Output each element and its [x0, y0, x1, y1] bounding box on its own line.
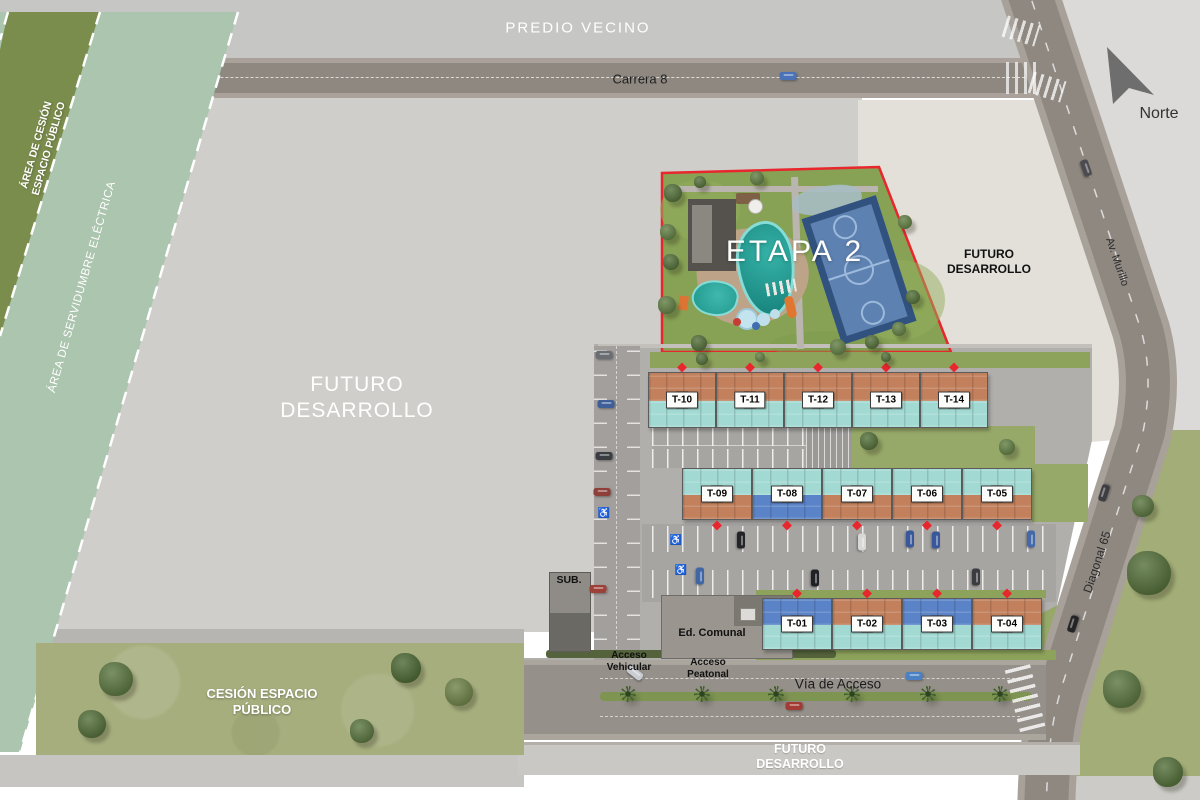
- clubhouse-building: [688, 199, 736, 271]
- tower-label[interactable]: T-06: [911, 486, 943, 503]
- tower[interactable]: T-14: [920, 372, 988, 428]
- tree-icon: [1103, 670, 1141, 708]
- tower-label[interactable]: T-14: [938, 392, 970, 409]
- building-detail: [740, 608, 756, 621]
- sidewalk: [598, 344, 1092, 348]
- court-center-circle: [840, 251, 878, 289]
- building-detail: [692, 205, 712, 263]
- sidewalk-strip: [0, 629, 524, 643]
- lawn: [1032, 464, 1088, 522]
- parking-stalls: [627, 346, 640, 664]
- parking-stalls: [652, 449, 806, 468]
- zone-label-line: DESARROLLO: [947, 262, 1031, 277]
- tree-icon: [1127, 551, 1171, 595]
- tower-roof-upper: [893, 469, 961, 495]
- stairs-detail: [762, 600, 788, 624]
- parking-stalls: [652, 426, 806, 446]
- sidewalk-strip: [0, 755, 524, 787]
- diagonal-65-label: Diagonal 65: [1080, 529, 1113, 594]
- tower-roof-upper: [963, 469, 1031, 495]
- tower-roof-upper: [973, 599, 1041, 625]
- playground-ball: [733, 318, 741, 326]
- futuro-desarrollo-bottom-zone: [518, 742, 1080, 775]
- north-label: Norte: [1139, 105, 1178, 123]
- bottom-right-sidewalk: [1056, 776, 1200, 800]
- tree-icon: [1132, 495, 1154, 517]
- tower-roof-lower: [853, 401, 919, 427]
- car-icon: [1067, 615, 1080, 634]
- car-icon: [1098, 484, 1111, 503]
- substation-building: [549, 572, 591, 652]
- parking-lot-north: [652, 426, 806, 468]
- tower-core: [991, 485, 1003, 503]
- tower[interactable]: T-05: [962, 468, 1032, 520]
- cesion-espacio-publico-zone: [36, 643, 524, 755]
- tower-roof-upper: [903, 599, 971, 625]
- tower-roof-lower: [963, 495, 1031, 519]
- tower-core: [861, 615, 873, 633]
- tower-roof-lower: [893, 495, 961, 519]
- parking-stalls: [594, 346, 607, 664]
- lane-divider: [616, 346, 617, 664]
- building-detail: [550, 613, 590, 651]
- splash-pad: [770, 309, 780, 319]
- playground-equipment: [678, 295, 689, 310]
- lawn-strip: [756, 590, 1046, 598]
- tower-label[interactable]: T-03: [921, 616, 953, 633]
- tree-icon: [1153, 757, 1183, 787]
- motorcycle-parking: [806, 427, 852, 468]
- umbrella-icon: [748, 199, 763, 214]
- internal-drive: [594, 346, 640, 664]
- court-key-circle: [858, 298, 888, 328]
- av-murillo-label: Av. Murillo: [1103, 236, 1131, 287]
- tower[interactable]: T-03: [902, 598, 972, 650]
- crosswalk: [1006, 62, 1042, 94]
- tower-roof-lower: [921, 401, 987, 427]
- futuro-desarrollo-right-zone: [858, 100, 1150, 442]
- tower-core: [948, 391, 960, 409]
- tower-label[interactable]: T-04: [991, 616, 1023, 633]
- tower-core: [931, 615, 943, 633]
- tree-icon: [898, 215, 912, 229]
- communal-building: [661, 595, 793, 659]
- tower-core: [1001, 615, 1013, 633]
- court-key-circle: [830, 212, 860, 242]
- lawn-strip: [650, 352, 1090, 368]
- playground-ball: [752, 322, 760, 330]
- lane-divider: [600, 678, 1020, 679]
- parking-stalls: [652, 526, 1046, 552]
- road-median: [600, 692, 1032, 701]
- tower[interactable]: T-13: [852, 372, 920, 428]
- futuro-desarrollo-right-label: FUTURO DESARROLLO: [947, 247, 1031, 277]
- lawn: [852, 426, 1035, 468]
- tower-core: [921, 485, 933, 503]
- lane-divider: [0, 77, 1040, 78]
- car-icon: [1079, 159, 1092, 178]
- tower-roof-lower: [973, 625, 1041, 649]
- tower-label[interactable]: T-05: [981, 486, 1013, 503]
- tower[interactable]: T-04: [972, 598, 1042, 650]
- tower-roof-upper: [921, 373, 987, 401]
- right-empty-zone: [1025, 0, 1200, 800]
- tower[interactable]: T-06: [892, 468, 962, 520]
- tower-roof-upper: [853, 373, 919, 401]
- lane-divider: [600, 716, 1020, 717]
- tower-roof-lower: [903, 625, 971, 649]
- tower-label[interactable]: T-13: [870, 392, 902, 409]
- zone-label-line: FUTURO: [947, 247, 1031, 262]
- tower-core: [880, 391, 892, 409]
- site-plan: T-10 T-11 T-12 T-13: [0, 0, 1200, 800]
- road-carrera-8: [0, 58, 1070, 98]
